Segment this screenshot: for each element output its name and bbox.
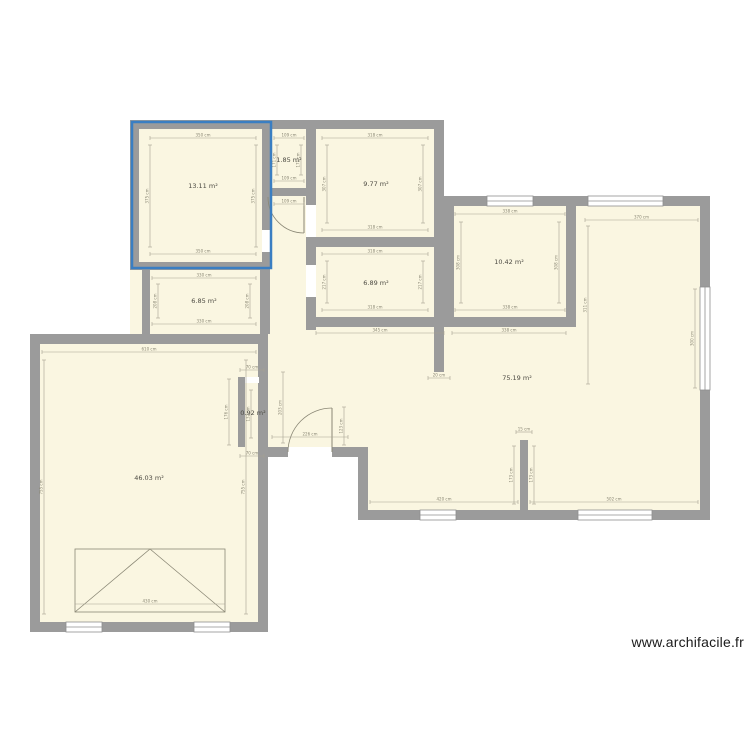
dimension-label[interactable]: 610 cm: [141, 347, 156, 352]
wall[interactable]: [358, 457, 368, 510]
dimension-label[interactable]: 330 cm: [196, 273, 211, 278]
dimension-label[interactable]: 420 cm: [436, 497, 451, 502]
door-opening[interactable]: [245, 377, 259, 383]
dimension-label[interactable]: 217 cm: [418, 274, 423, 289]
room-area-label: 75.19 m²: [502, 374, 532, 382]
wall[interactable]: [434, 120, 444, 372]
room-area-label: 6.89 m²: [363, 279, 389, 287]
wall[interactable]: [260, 270, 270, 334]
room-area-label: 13.11 m²: [188, 182, 218, 190]
dimension-label[interactable]: 70 cm: [246, 365, 259, 370]
room-floor[interactable]: [444, 196, 710, 520]
wall[interactable]: [566, 206, 576, 327]
dimension-label[interactable]: 338 cm: [502, 305, 517, 310]
dimension-label[interactable]: 307 cm: [418, 176, 423, 191]
dimension-label[interactable]: 350 cm: [195, 249, 210, 254]
wall[interactable]: [306, 317, 434, 327]
dimension-label[interactable]: 300 cm: [690, 331, 695, 346]
wall[interactable]: [444, 196, 710, 206]
dimension-label[interactable]: 502 cm: [606, 497, 621, 502]
dimension-label[interactable]: 217 cm: [322, 274, 327, 289]
door-opening[interactable]: [306, 265, 316, 297]
room-floor[interactable]: [30, 334, 268, 632]
wall[interactable]: [30, 334, 268, 344]
dimension-label[interactable]: 318 cm: [367, 225, 382, 230]
dimension-label[interactable]: 311 cm: [583, 297, 588, 312]
dimension-label[interactable]: 203 cm: [278, 400, 283, 415]
dimension-label[interactable]: 226 cm: [302, 432, 317, 437]
dimension-label[interactable]: 338 cm: [501, 328, 516, 333]
wall[interactable]: [142, 270, 150, 334]
dimension-label[interactable]: 109 cm: [281, 199, 296, 204]
dimension-label[interactable]: 20 cm: [433, 373, 446, 378]
dimension-label[interactable]: 15 cm: [518, 427, 531, 432]
room-area-label: 10.42 m²: [494, 258, 524, 266]
room-area-label: 0.92 m²: [240, 409, 266, 417]
dimension-label[interactable]: 308 cm: [554, 255, 559, 270]
dimension-label[interactable]: 345 cm: [372, 328, 387, 333]
dimension-label[interactable]: 370 cm: [634, 215, 649, 220]
door-opening[interactable]: [288, 447, 332, 457]
dimension-label[interactable]: 375 cm: [145, 188, 150, 203]
door-opening[interactable]: [262, 230, 270, 252]
dimension-label[interactable]: 307 cm: [322, 176, 327, 191]
room-area-label: 46.03 m²: [134, 474, 164, 482]
dimension-label[interactable]: 318 cm: [367, 249, 382, 254]
room-floor[interactable]: [130, 120, 444, 344]
dimension-label[interactable]: 173 cm: [529, 467, 534, 482]
room-area-label: 9.77 m²: [363, 180, 389, 188]
dimension-label[interactable]: 318 cm: [367, 133, 382, 138]
room-area-label: 6.85 m²: [191, 297, 217, 305]
wall[interactable]: [316, 237, 434, 247]
dimension-label[interactable]: 208 cm: [245, 293, 250, 308]
dimension-label[interactable]: 123 cm: [339, 418, 344, 433]
dimension-label[interactable]: 375 cm: [251, 188, 256, 203]
wall[interactable]: [270, 188, 306, 196]
wall[interactable]: [520, 440, 528, 510]
watermark-link[interactable]: www.archifacile.fr: [631, 634, 744, 650]
wall[interactable]: [444, 206, 454, 327]
wall[interactable]: [258, 344, 268, 632]
dimension-label[interactable]: 208 cm: [153, 293, 158, 308]
room-floor[interactable]: [268, 330, 444, 520]
dimension-label[interactable]: 70 cm: [246, 451, 259, 456]
dimension-label[interactable]: 350 cm: [195, 133, 210, 138]
wall[interactable]: [444, 317, 576, 327]
wall[interactable]: [358, 510, 710, 520]
plan-editor-stage: 350 cm350 cm375 cm375 cm109 cm109 cm171 …: [0, 0, 750, 750]
dimension-label[interactable]: 755 cm: [39, 479, 44, 494]
door-opening[interactable]: [306, 205, 316, 237]
dimension-label[interactable]: 318 cm: [367, 305, 382, 310]
dimension-label[interactable]: 173 cm: [509, 467, 514, 482]
room-area-label: 1.85 m²: [276, 156, 302, 164]
dimension-label[interactable]: 308 cm: [456, 255, 461, 270]
dimension-label[interactable]: 109 cm: [281, 176, 296, 181]
dimension-label[interactable]: 338 cm: [502, 209, 517, 214]
dimension-label[interactable]: 755 cm: [241, 479, 246, 494]
dimension-label[interactable]: 430 cm: [142, 599, 157, 604]
dimension-label[interactable]: 109 cm: [281, 133, 296, 138]
dimension-label[interactable]: 330 cm: [196, 319, 211, 324]
dimension-label[interactable]: 176 cm: [224, 404, 229, 419]
